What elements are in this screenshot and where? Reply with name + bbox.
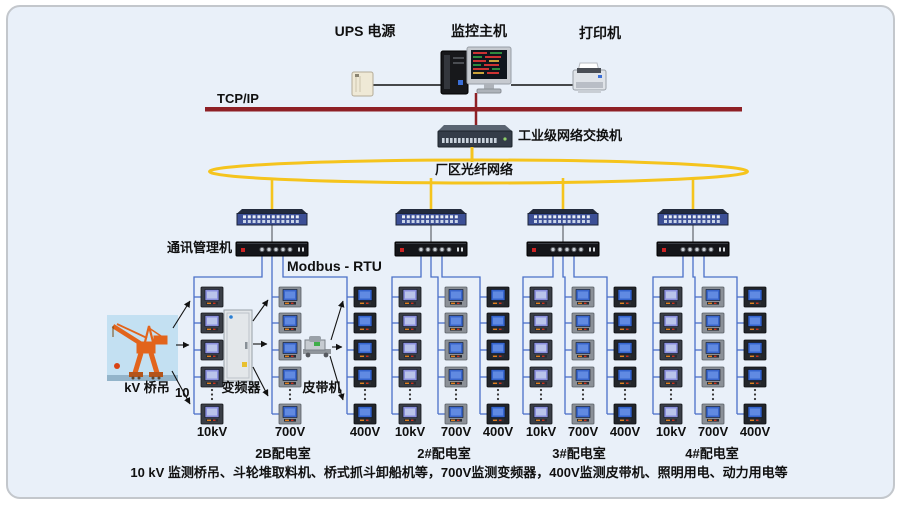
voltage-column-label: 700V [441,425,471,438]
power-meter-icon [660,367,682,387]
rs485-bus-line [392,256,421,414]
ethernet-switch-icon [528,209,598,225]
power-meter-icon [702,367,724,387]
power-meter-icon [279,404,301,424]
power-meter-icon [201,313,223,333]
power-meter-icon [201,404,223,424]
more-meters-ellipsis [670,389,672,400]
ethernet-switch-icon [658,209,728,225]
belt-label: 皮带机 [302,381,341,394]
rs485-bus-line [563,256,565,414]
rs485-bus-line [704,256,737,414]
power-meter-icon [702,404,724,424]
power-monitoring-topology-diagram: UPS 电源 监控主机 打印机 TCP/IP 工业级网络交换机 厂区光纤网络 通… [0,0,905,507]
power-meter-icon [530,287,552,307]
power-meter-icon [572,287,594,307]
power-meter-icon [354,340,376,360]
power-meter-icon [744,340,766,360]
power-meter-icon [279,313,301,333]
belt-conveyor-icon [303,336,331,357]
power-meter-icon [487,404,509,424]
power-meter-icon [744,367,766,387]
power-meter-icon [399,367,421,387]
voltage-column-label: 700V [568,425,598,438]
distribution-room-label: 2B配电室 [255,447,311,460]
converter-label: 变频器 [221,381,260,394]
power-meter-icon [201,367,223,387]
crane-image [107,315,178,381]
power-meter-icon [530,404,552,424]
power-meter-icon [572,404,594,424]
power-meter-icon [572,367,594,387]
power-meter-icon [445,287,467,307]
rs485-bus-line [693,256,695,414]
printer-label: 打印机 [579,26,621,40]
modbus-protocol-label: Modbus - RTU [287,259,382,273]
power-meter-icon [354,313,376,333]
voltage-column-label: 400V [610,425,640,438]
power-meter-icon [744,287,766,307]
industrial-switch-label: 工业级网络交换机 [518,129,622,142]
power-meter-icon [201,340,223,360]
power-meter-icon [279,367,301,387]
crane-label-prefix: 10 [175,386,189,399]
industrial-switch-icon [438,125,512,147]
more-meters-ellipsis [712,389,714,400]
power-meter-icon [660,340,682,360]
power-meter-icon [614,313,636,333]
tcpip-backbone-line [205,107,742,112]
rs485-bus-line [431,256,438,414]
power-meter-icon [399,404,421,424]
power-meter-icon [399,340,421,360]
more-meters-ellipsis [455,389,457,400]
voltage-column-label: 10kV [656,425,686,438]
voltage-column-label: 400V [350,425,380,438]
power-meter-icon [614,340,636,360]
comm-manager-icon [395,242,467,256]
more-meters-ellipsis [624,389,626,400]
more-meters-ellipsis [211,389,213,400]
power-meter-icon [445,367,467,387]
power-meter-icon [201,287,223,307]
power-meter-icon [279,287,301,307]
comm-manager-icon [527,242,599,256]
power-meter-icon [354,367,376,387]
more-meters-ellipsis [540,389,542,400]
power-meter-icon [279,340,301,360]
frequency-converter-icon [224,310,252,381]
more-meters-ellipsis [409,389,411,400]
rs485-bus-line [574,256,607,414]
power-meter-icon [572,340,594,360]
rs485-bus-line [442,256,480,414]
power-meter-icon [744,313,766,333]
power-meter-icon [530,367,552,387]
power-meter-icon [660,404,682,424]
power-meter-icon [354,404,376,424]
voltage-column-label: 10kV [395,425,425,438]
voltage-column-label: 10kV [526,425,556,438]
power-meter-icon [660,287,682,307]
diagram-caption: 10 kV 监测桥吊、斗轮堆取料机、桥式抓斗卸船机等，700V监测变频器，400… [130,466,787,479]
rs485-bus-line [653,256,683,414]
comm-manager-label: 通讯管理机 [167,241,232,254]
fiber-ring-label: 厂区光纤网络 [435,163,513,176]
more-meters-ellipsis [364,389,366,400]
power-meter-icon [614,367,636,387]
ups-icon [352,72,373,96]
voltage-column-label: 700V [275,425,305,438]
power-meter-icon [614,287,636,307]
power-meter-icon [487,313,509,333]
power-meter-icon [445,404,467,424]
more-meters-ellipsis [582,389,584,400]
crane-label: kV 桥吊 [124,381,170,394]
power-meter-icon [614,404,636,424]
host-label: 监控主机 [451,24,507,38]
power-meter-icon [399,313,421,333]
power-meter-icon [399,287,421,307]
comm-manager-icon [657,242,729,256]
more-meters-ellipsis [754,389,756,400]
power-meter-icon [702,287,724,307]
power-meter-icon [445,313,467,333]
power-meter-icon [530,313,552,333]
distribution-room-label: 4#配电室 [685,447,738,460]
power-meter-icon [354,287,376,307]
power-meter-icon [445,340,467,360]
ethernet-switch-icon [396,209,466,225]
voltage-column-label: 700V [698,425,728,438]
power-meter-icon [487,367,509,387]
ethernet-switch-icon [237,209,307,225]
voltage-column-label: 400V [483,425,513,438]
power-meter-icon [487,287,509,307]
power-meter-icon [702,340,724,360]
monitoring-host-icon [441,47,511,94]
power-meter-icon [702,313,724,333]
printer-icon [573,63,606,93]
voltage-column-label: 400V [740,425,770,438]
distribution-room-label: 2#配电室 [417,447,470,460]
power-meter-icon [744,404,766,424]
ups-label: UPS 电源 [335,24,396,38]
comm-manager-icon [236,242,308,256]
power-meter-icon [660,313,682,333]
distribution-room-label: 3#配电室 [552,447,605,460]
more-meters-ellipsis [497,389,499,400]
more-meters-ellipsis [289,389,291,400]
rs485-bus-line [523,256,553,414]
voltage-column-label: 10kV [197,425,227,438]
power-meter-icon [487,340,509,360]
tcpip-label: TCP/IP [217,92,259,105]
power-meter-icon [530,340,552,360]
power-meter-icon [572,313,594,333]
